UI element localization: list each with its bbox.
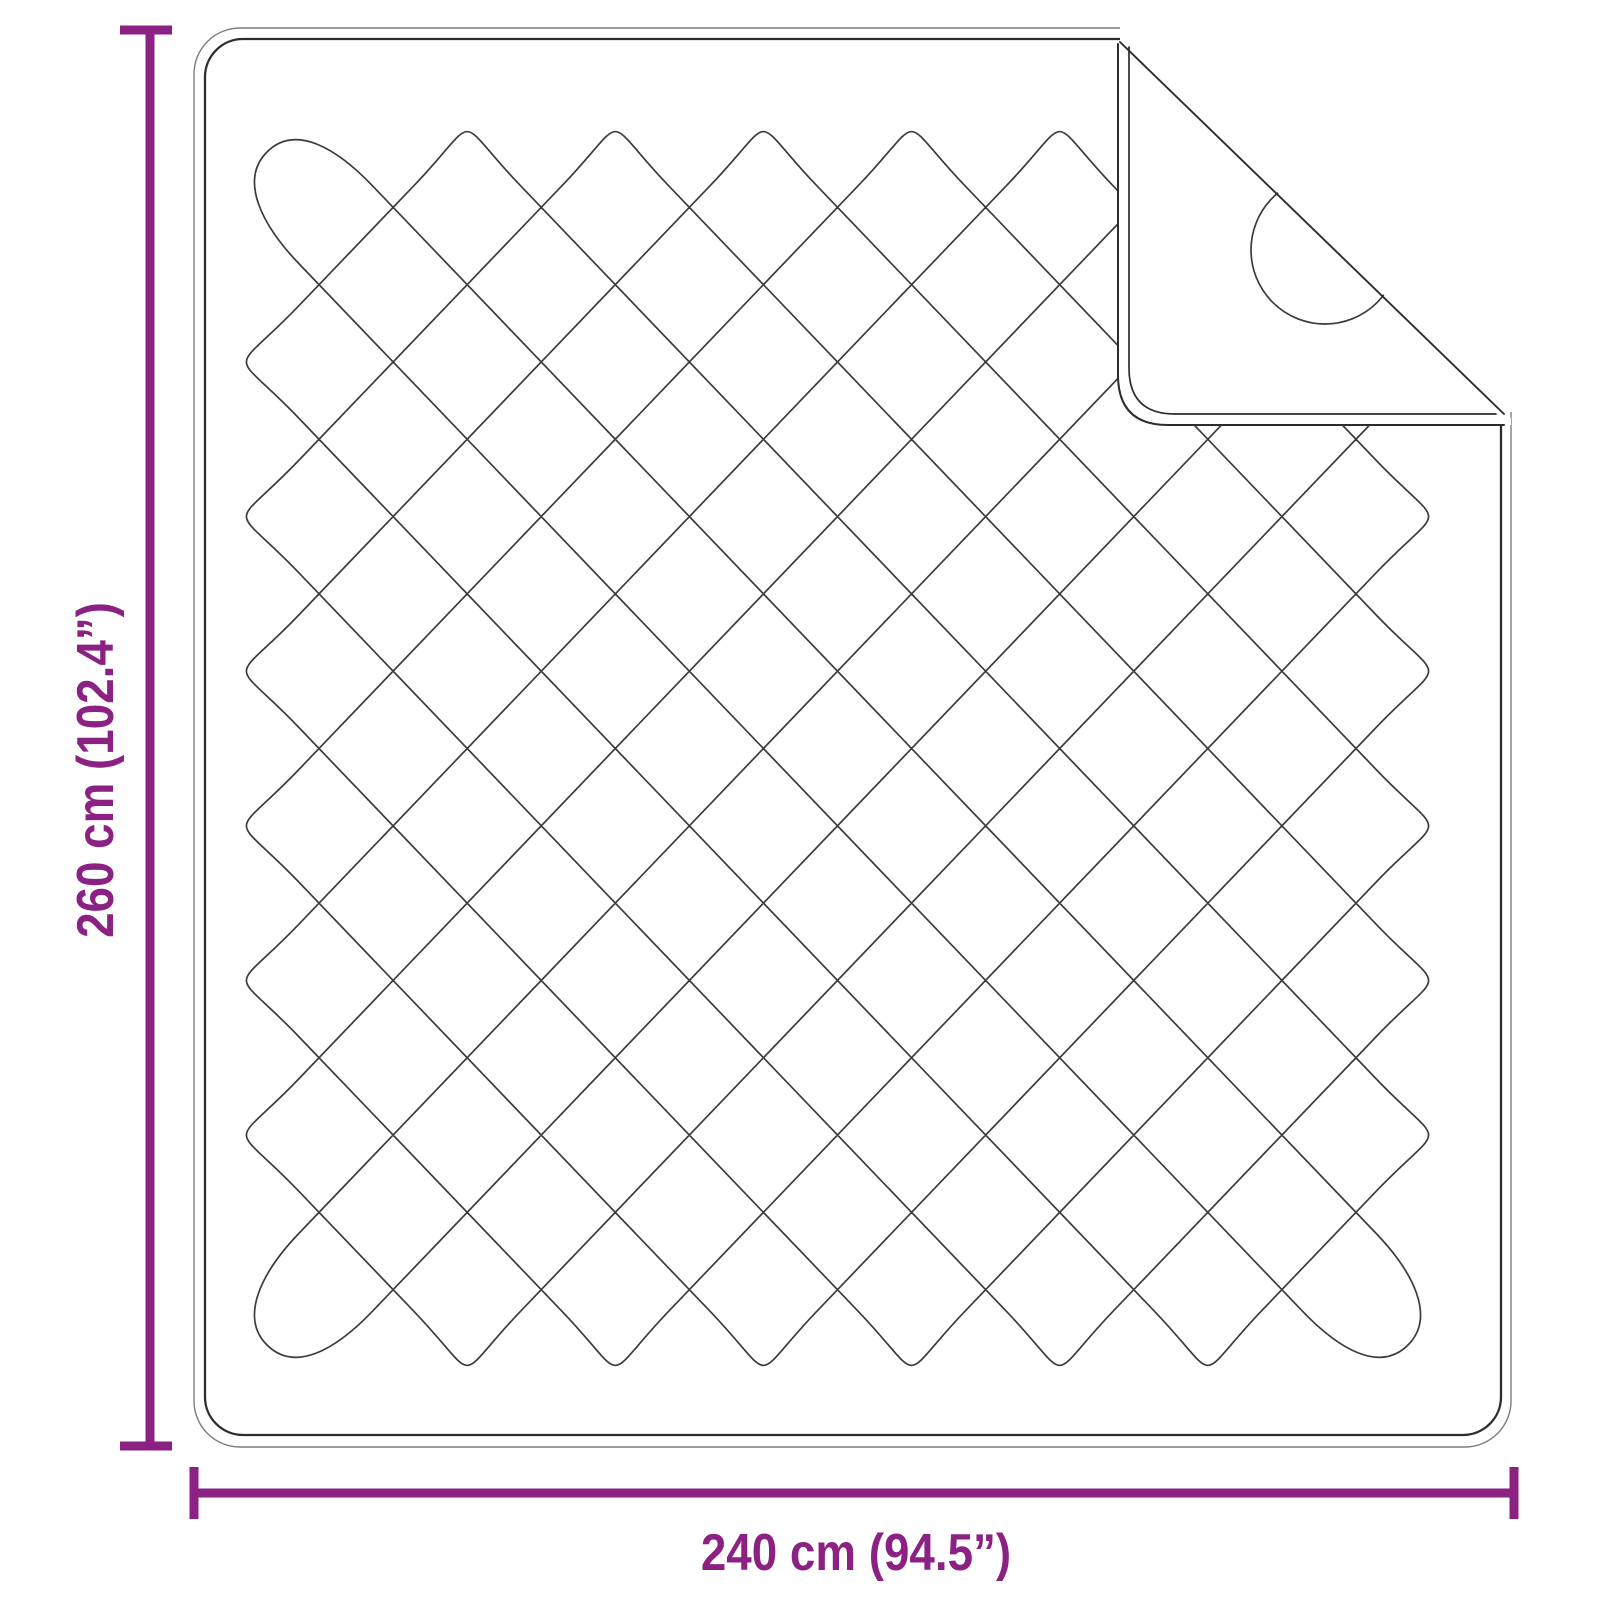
height-dimension-cap-top: [120, 26, 172, 35]
width-dimension-label: 240 cm (94.5”): [701, 1527, 1011, 1579]
width-dimension-bar: [194, 1489, 1514, 1498]
width-dimension-cap-left: [190, 1467, 199, 1519]
height-dimension-label: 260 cm (102.4”): [70, 602, 122, 938]
blanket-diagram: [0, 0, 1600, 1600]
height-dimension-cap-bottom: [120, 1442, 172, 1451]
height-dimension-bar: [146, 30, 155, 1446]
width-dimension-line: [190, 1467, 1519, 1519]
diagram-canvas: 260 cm (102.4”) 240 cm (94.5”): [0, 0, 1600, 1600]
height-dimension-line: [120, 26, 172, 1451]
width-dimension-cap-right: [1510, 1467, 1519, 1519]
